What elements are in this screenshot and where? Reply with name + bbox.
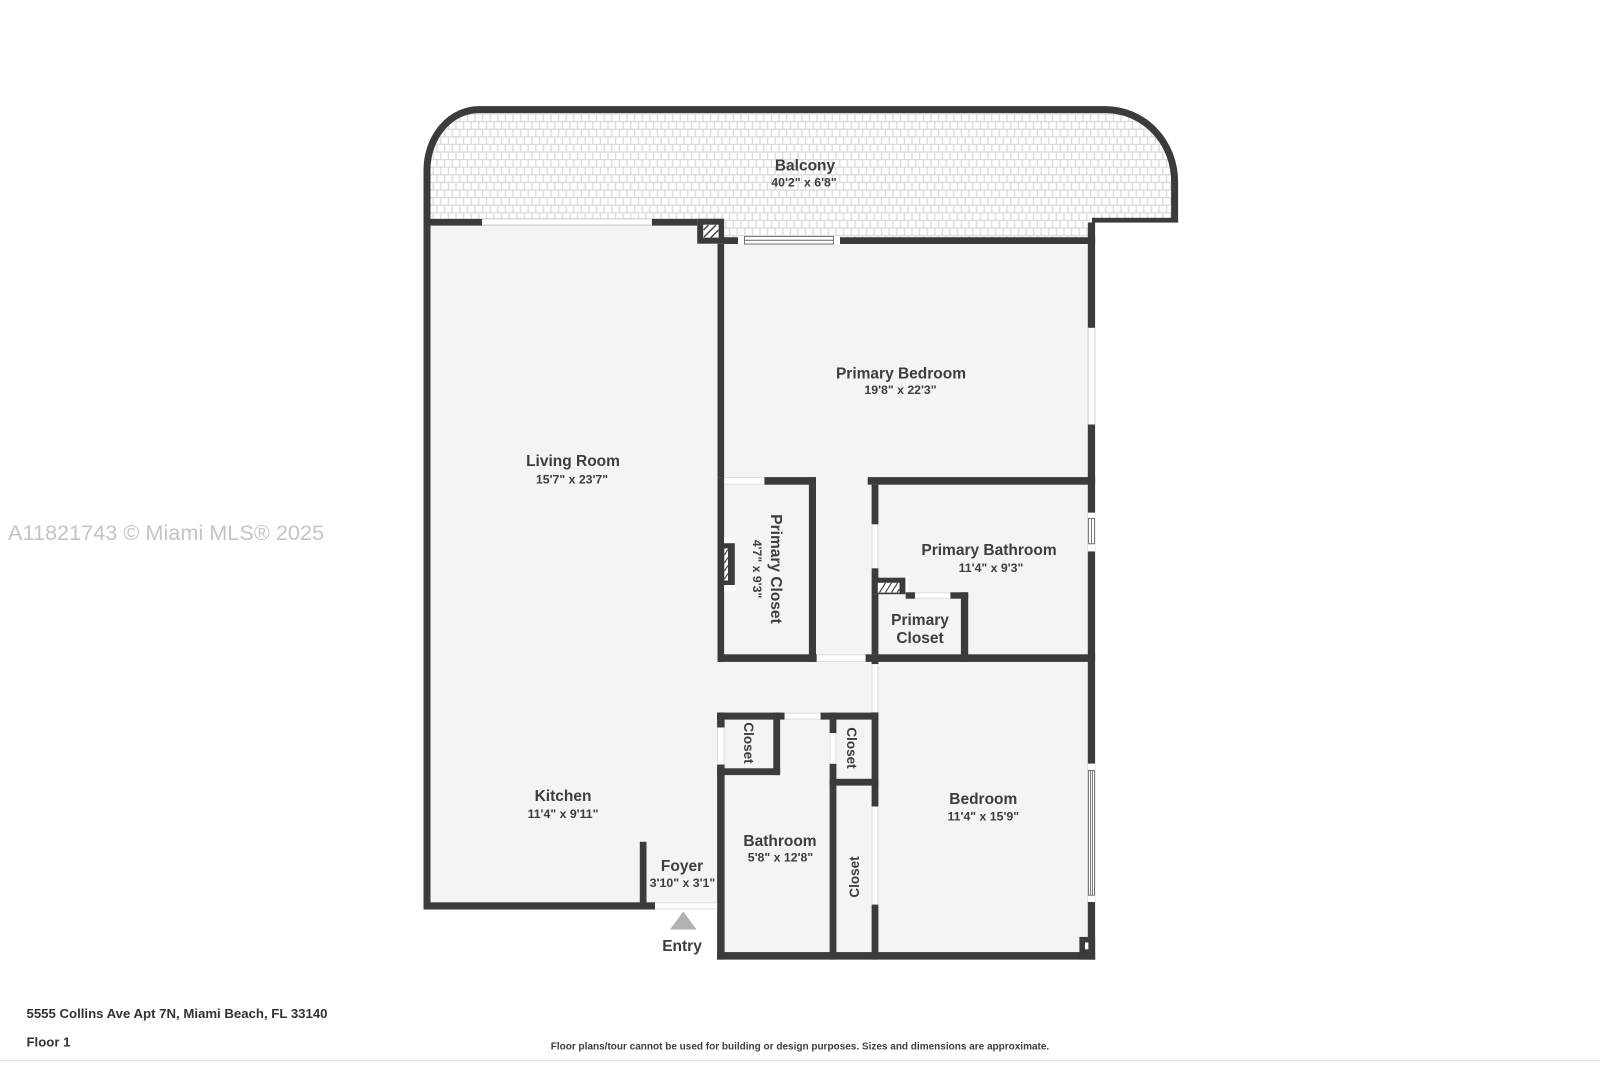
svg-text:19'8" x 22'3": 19'8" x 22'3" [864, 383, 936, 397]
svg-text:5'8" x 12'8": 5'8" x 12'8" [748, 851, 814, 865]
svg-text:Floor 1: Floor 1 [27, 1035, 71, 1050]
svg-text:Floor plans/tour cannot be use: Floor plans/tour cannot be used for buil… [551, 1042, 1050, 1053]
svg-text:Closet: Closet [896, 630, 943, 647]
svg-text:Entry: Entry [662, 938, 702, 955]
svg-text:Primary Bedroom: Primary Bedroom [836, 366, 966, 383]
svg-text:Primary Bathroom: Primary Bathroom [921, 542, 1056, 559]
svg-text:Closet: Closet [741, 722, 756, 764]
svg-text:Foyer: Foyer [661, 858, 703, 875]
svg-text:11'4" x 9'3": 11'4" x 9'3" [959, 561, 1024, 575]
svg-text:15'7" x 23'7": 15'7" x 23'7" [536, 473, 608, 487]
svg-text:Balcony: Balcony [775, 158, 836, 175]
svg-text:Living Room: Living Room [526, 453, 620, 470]
svg-text:Primary Closet: Primary Closet [767, 514, 784, 623]
svg-text:11'4" x 15'9": 11'4" x 15'9" [948, 810, 1020, 824]
svg-text:Bedroom: Bedroom [949, 791, 1017, 808]
svg-text:Primary: Primary [891, 612, 949, 629]
svg-text:Closet: Closet [847, 856, 862, 898]
svg-text:40'2" x 6'8": 40'2" x 6'8" [771, 176, 837, 190]
svg-text:4'7" x 9'3": 4'7" x 9'3" [750, 540, 764, 599]
svg-text:3'10" x 3'1": 3'10" x 3'1" [650, 876, 716, 890]
svg-text:Bathroom: Bathroom [743, 833, 816, 850]
svg-text:A11821743 © Miami MLS® 2025: A11821743 © Miami MLS® 2025 [8, 520, 324, 545]
svg-text:Closet: Closet [844, 727, 859, 769]
svg-text:11'4" x 9'11": 11'4" x 9'11" [528, 807, 599, 821]
svg-text:5555 Collins Ave Apt 7N, Miami: 5555 Collins Ave Apt 7N, Miami Beach, FL… [27, 1006, 328, 1021]
svg-text:Kitchen: Kitchen [535, 788, 592, 805]
